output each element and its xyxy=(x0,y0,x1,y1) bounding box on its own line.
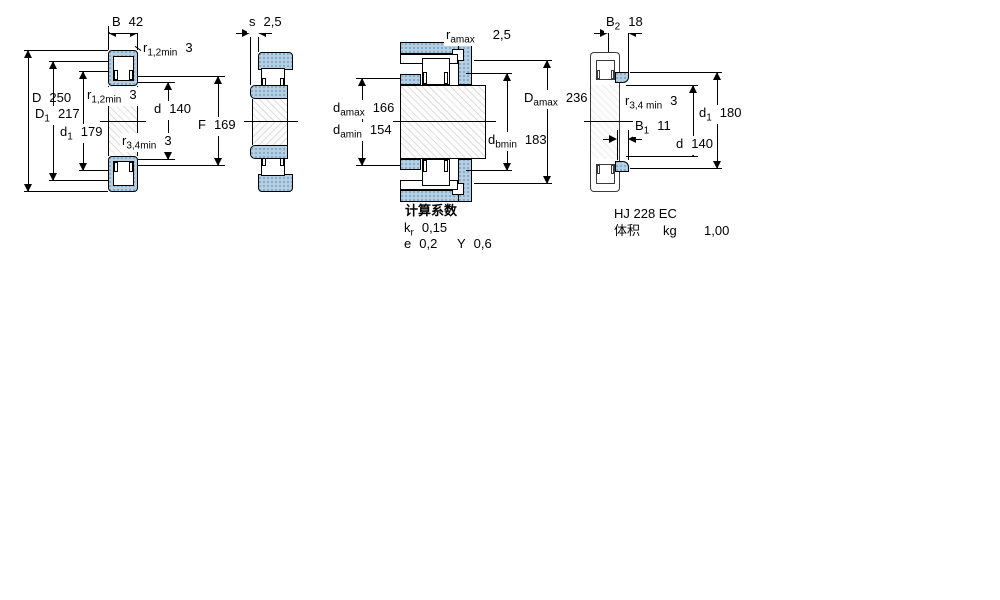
extension-line xyxy=(258,37,259,52)
dim-value: 140 xyxy=(169,101,191,116)
extension-line xyxy=(24,191,108,192)
dim-value: 18 xyxy=(628,14,642,29)
dim-symbol: B xyxy=(606,14,615,29)
arrowhead xyxy=(503,73,511,81)
dimension-line xyxy=(547,60,548,184)
housing-abutment xyxy=(400,190,460,202)
side-view-bottom-half xyxy=(250,122,294,192)
cage-bar xyxy=(423,160,427,172)
bearing-drawing-canvas: B42 r1,2min3 D250 D1217 d1179 r1,2min3 d… xyxy=(0,0,1000,600)
dimension-line xyxy=(83,71,84,171)
dim-subscript: 2 xyxy=(615,22,621,33)
extension-line xyxy=(49,61,108,62)
dim-value: 2,5 xyxy=(264,14,282,29)
mounted-view-top-half xyxy=(400,42,490,85)
dim-symbol: d xyxy=(154,101,161,116)
dimension-line xyxy=(507,73,508,171)
inner-ring-band xyxy=(250,145,288,159)
dim-subscript: bmin xyxy=(495,140,517,151)
dim-value: 236 xyxy=(566,90,588,105)
center-line xyxy=(584,121,636,122)
cage-bar xyxy=(114,162,118,172)
cage-bar xyxy=(597,165,600,174)
dim-value: 166 xyxy=(373,100,395,115)
mounted-view-bottom-half xyxy=(400,159,490,202)
arrowhead xyxy=(214,76,222,84)
calculation-factors-title: 计算系数 xyxy=(403,203,459,218)
dim-label-damax: damax166 xyxy=(331,100,396,119)
extension-line xyxy=(466,73,512,74)
side-view-top-half xyxy=(250,52,294,122)
dim-symbol: D xyxy=(32,90,41,105)
extension-line xyxy=(630,72,722,73)
cage-bar xyxy=(129,70,133,80)
dim-symbol: d xyxy=(676,136,683,151)
dim-label-r34min: r3,4 min3 xyxy=(623,93,679,112)
extension-line xyxy=(79,71,108,72)
hj-hook-section xyxy=(458,159,472,202)
dim-value: 183 xyxy=(525,132,547,147)
extension-line xyxy=(79,170,108,171)
dim-value: 154 xyxy=(370,122,392,137)
dim-value: 3 xyxy=(670,93,677,108)
dim-value: 3 xyxy=(129,87,136,102)
dim-label-Damax: Damax236 xyxy=(522,90,590,109)
dim-subscript: 1 xyxy=(706,113,712,124)
extension-line xyxy=(474,60,552,61)
dim-subscript: 1,2min xyxy=(147,48,177,59)
dim-symbol: F xyxy=(198,117,206,132)
dim-label-s: s2,5 xyxy=(247,14,284,33)
dim-label-d1: d1179 xyxy=(58,124,105,143)
inner-ring-band xyxy=(250,85,288,99)
extension-line xyxy=(49,180,108,181)
center-line xyxy=(393,121,496,122)
shaft-shoulder xyxy=(400,74,421,85)
dim-label-d-v4: d140 xyxy=(674,136,715,155)
center-line xyxy=(100,121,146,122)
arrowhead xyxy=(713,72,721,80)
dim-subscript: amax xyxy=(533,98,557,109)
hj-designation: HJ 228 EC xyxy=(612,206,679,221)
arrowhead xyxy=(543,60,551,68)
dim-value: 42 xyxy=(129,14,143,29)
extension-line xyxy=(630,168,722,169)
dim-symbol: D xyxy=(35,106,44,121)
extension-line xyxy=(138,82,175,83)
mass-value: 1,00 xyxy=(702,223,731,238)
center-line xyxy=(244,121,298,122)
dimension-tail xyxy=(636,33,642,34)
extension-line xyxy=(138,76,225,77)
extension-line xyxy=(617,130,618,160)
dim-value: 169 xyxy=(214,117,236,132)
shaft-section xyxy=(400,85,486,159)
dim-subscript: 1 xyxy=(67,132,73,143)
dim-symbol: B xyxy=(112,14,121,29)
factor-Y: Y0,6 xyxy=(455,236,494,251)
dim-value: 140 xyxy=(691,136,713,151)
extension-line xyxy=(626,85,698,86)
outer-inner-ring-section-bottom xyxy=(108,156,138,192)
dim-symbol: D xyxy=(524,90,533,105)
dim-value: 3 xyxy=(185,40,192,55)
arrowhead xyxy=(49,61,57,69)
cage-bar xyxy=(444,160,448,172)
hj-angle-ring xyxy=(615,161,629,172)
extension-line xyxy=(466,170,512,171)
dim-subscript: amin xyxy=(340,130,362,141)
extension-line xyxy=(474,183,552,184)
bore-section xyxy=(252,99,288,122)
extension-line xyxy=(250,37,251,85)
dim-value: 179 xyxy=(81,124,103,139)
dim-label-dbmin: dbmin183 xyxy=(486,132,549,151)
dim-subscript: amax xyxy=(340,108,364,119)
dim-label-r12-top: r1,2min3 xyxy=(141,40,195,59)
arrowhead xyxy=(164,82,172,90)
dim-subscript: 1 xyxy=(644,126,650,137)
extension-line xyxy=(356,78,400,79)
dimension-tail xyxy=(636,139,642,140)
shaft-shoulder xyxy=(400,159,421,170)
dim-symbol: s xyxy=(249,14,256,29)
cage-bar xyxy=(611,70,614,79)
arrowhead xyxy=(609,135,617,143)
cage-bar xyxy=(611,165,614,174)
outer-ring-band xyxy=(258,174,293,192)
dim-label-d: d140 xyxy=(152,101,193,120)
cage-bar xyxy=(444,72,448,84)
extension-line xyxy=(138,159,175,160)
extension-line xyxy=(138,165,225,166)
dim-symbol: B xyxy=(635,118,644,133)
extension-line xyxy=(356,165,400,166)
dim-symbol: Y xyxy=(457,236,466,251)
dim-value: 0,15 xyxy=(422,220,447,235)
outer-inner-ring-section-top xyxy=(108,50,138,86)
dim-value: 0,6 xyxy=(474,236,492,251)
dim-label-B2: B218 xyxy=(604,14,645,33)
dim-label-r12-mid: r1,2min3 xyxy=(85,87,139,106)
dim-label-B1: B111 xyxy=(633,118,673,137)
dim-symbol: e xyxy=(404,236,411,251)
dim-label-r34: r3,4min3 xyxy=(120,133,174,152)
dim-label-d1-v4: d1180 xyxy=(697,105,744,124)
extension-line xyxy=(24,50,108,51)
dim-value: 180 xyxy=(720,105,742,120)
mass-unit: kg xyxy=(661,223,679,238)
dimension-tail xyxy=(266,33,272,34)
dimension-line xyxy=(28,50,29,192)
arrowhead xyxy=(24,50,32,58)
mass-label: 体积 xyxy=(612,223,642,238)
cage-bar xyxy=(423,72,427,84)
arrowhead xyxy=(358,78,366,86)
dim-subscript: 1 xyxy=(44,114,50,125)
arrowhead xyxy=(79,71,87,79)
dim-label-damin: damin154 xyxy=(331,122,394,141)
hj-view-bottom-half xyxy=(590,122,630,192)
dim-subscript: 1,2min xyxy=(91,95,121,106)
cage-bar xyxy=(129,162,133,172)
hj-angle-ring xyxy=(615,72,629,83)
dim-value: 3 xyxy=(164,133,171,148)
dim-label-B: B42 xyxy=(110,14,145,33)
dim-value: 11 xyxy=(657,118,671,133)
dim-value: 2,5 xyxy=(493,27,511,42)
dim-label-F: F169 xyxy=(196,117,238,136)
bore-section xyxy=(252,122,288,145)
arrowhead xyxy=(689,85,697,93)
cage-bar xyxy=(597,70,600,79)
factor-e: e0,2 xyxy=(402,236,439,251)
dim-value: 0,2 xyxy=(419,236,437,251)
dim-label-D1: D1217 xyxy=(33,106,82,125)
extension-line xyxy=(626,156,698,157)
dim-value: 217 xyxy=(58,106,80,121)
dim-subscript: amax xyxy=(450,35,474,46)
cage-bar xyxy=(114,70,118,80)
dim-subscript: 3,4min xyxy=(126,141,156,152)
dim-label-ramax: ramax2,5 xyxy=(444,27,513,46)
dim-subscript: 3,4 min xyxy=(629,101,662,112)
